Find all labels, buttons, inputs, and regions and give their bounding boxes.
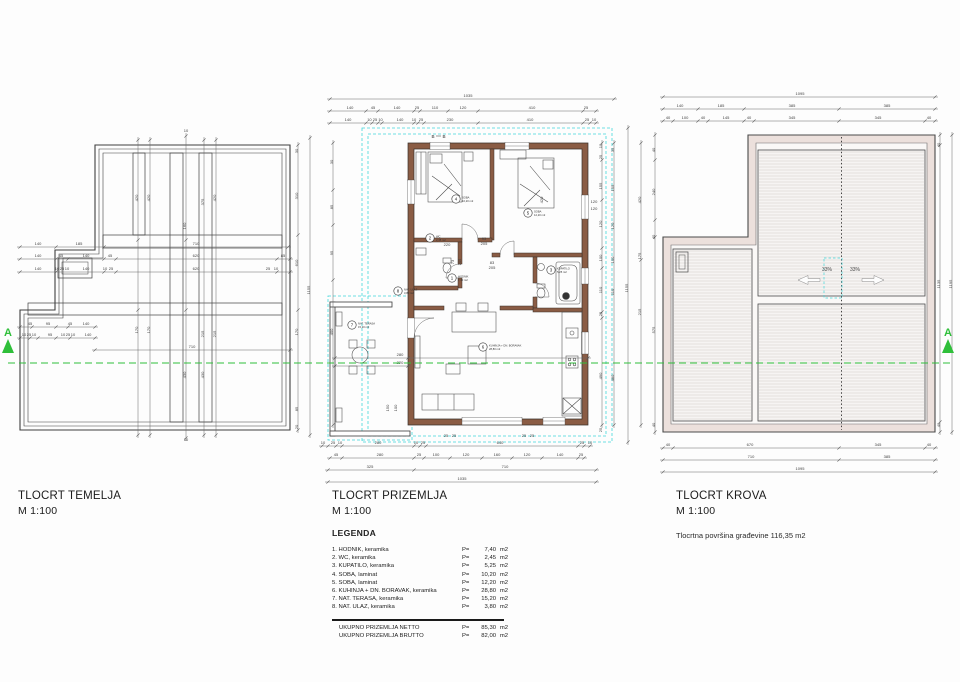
dim-label: 10 25 10 (367, 117, 383, 122)
dim-label: 25 (598, 154, 603, 159)
dim-label: 710 (189, 344, 196, 349)
legend-item-unit: m2 (496, 555, 508, 561)
plan-title: TLOCRT KROVA (676, 489, 767, 504)
dim-label: 155 (610, 184, 615, 191)
legend-item-p: P= (462, 547, 476, 553)
dim-label: 420 (146, 194, 151, 201)
foundation-dim-labels: 1401857101404514045620851401025101401025… (22, 128, 311, 442)
legend-items: 1. HODNIK, keramikaP=7,40m22. WC, kerami… (332, 547, 508, 613)
legend-item-lab: 8. NAT. ULAZ, keramika (332, 604, 462, 610)
dim-label: 100 (682, 115, 689, 120)
dim-label: 1135 (936, 279, 941, 288)
legend-item-val: 15,20 (476, 596, 496, 602)
dim-label: 10 (65, 266, 70, 271)
dim-label: 385 (789, 103, 796, 108)
dim-label: 385 (884, 103, 891, 108)
dim-label: 25 (598, 427, 603, 432)
dim-label: 45 (59, 253, 64, 258)
dim-label: 100 (393, 404, 398, 411)
legend-item-lab: 3. KUPATILO, keramika (332, 563, 462, 569)
section-marker-a-right: A (944, 327, 952, 339)
dim-label: 185 (76, 241, 83, 246)
dim-label: 120 (463, 452, 470, 457)
dim-label: 345 (875, 115, 882, 120)
dim-label: 1195 (948, 279, 953, 288)
dim-label: 160 (182, 222, 187, 229)
dim-label: 575 (651, 326, 656, 333)
room-name: KUPATILO (557, 267, 570, 271)
legend-item: 4. SOBA, laminatP=10,20m2 (332, 572, 508, 580)
dim-label: 145 (723, 115, 730, 120)
room-area: 15,20 m2 (358, 325, 370, 329)
dim-label: 205 (457, 258, 462, 265)
dim-label: 25 (585, 117, 590, 122)
dim-label: 280 (375, 440, 382, 445)
title-block-temelja: TLOCRT TEMELJA M 1:100 (18, 489, 121, 519)
dim-label: 25 (266, 266, 271, 271)
toilet (537, 288, 545, 298)
legend-item-val: 3,80 (476, 604, 496, 610)
openings (407, 142, 589, 425)
legend-item-lab: UKUPNO PRIZEMLJA NETTO (332, 625, 462, 631)
dim-label: 120 (591, 206, 598, 211)
legend-item: 2. WC, keramikaP=2,45m2 (332, 555, 508, 563)
dim-label: 85 (329, 204, 334, 209)
dim-label: 160 (494, 452, 501, 457)
room-name: KUHINJA + DN. BORAVAK (489, 344, 522, 348)
dim-label: 175 (637, 252, 642, 259)
plan-scale: M 1:100 (676, 504, 767, 519)
dim-label: 410 (529, 105, 536, 110)
legend-item-p: P= (462, 633, 476, 639)
dim-label: 100 (610, 256, 615, 263)
section-marker-a-left: A (4, 327, 12, 339)
legend-item-val: 82,00 (476, 633, 496, 639)
dim-label: 85 (294, 406, 299, 411)
roof-panels (673, 150, 925, 421)
dim-label: 375 (200, 198, 205, 205)
room-area: 10,20 m2 (462, 199, 474, 203)
room-area: 2,45 m2 (436, 238, 446, 242)
legend-item-val: 5,25 (476, 563, 496, 569)
sink (416, 248, 426, 255)
dim-label: 345 (789, 115, 796, 120)
legend-item: 7. NAT. TERASA, keramikaP=15,20m2 (332, 596, 508, 604)
footing-strip (170, 153, 183, 422)
dim-label: 155 (598, 182, 603, 189)
dim-label: 1035 (458, 476, 468, 481)
dim-label: 95 (48, 332, 53, 337)
dim-label: 140 (35, 241, 42, 246)
legend: LEGENDA 1. HODNIK, keramikaP=7,40m22. WC… (332, 528, 508, 641)
legend-item: UKUPNO PRIZEMLJA NETTOP=85,30m2 (332, 625, 508, 633)
dim-label: 25 (452, 433, 457, 438)
sofa (422, 394, 474, 410)
legend-separator (332, 619, 504, 621)
section-marker-b: BB (431, 134, 445, 139)
room-area: 7,40 m2 (458, 278, 468, 282)
dim-label: 10 (71, 332, 76, 337)
dim-label: 40 (651, 234, 656, 239)
sink (538, 264, 545, 271)
dim-label: 1155 (306, 285, 311, 294)
dim-label: 420 (637, 196, 642, 203)
dim-label: 25 (522, 433, 527, 438)
room-name: WC (436, 235, 441, 239)
legend-item-unit: m2 (496, 596, 508, 602)
dim-label: 640 (497, 440, 504, 445)
stove (563, 293, 570, 300)
dim-label: 215 (212, 330, 217, 337)
dim-label: 40 (936, 142, 941, 147)
room-name: NAT. ULAZ (404, 288, 418, 292)
dim-label: 30 (294, 148, 299, 153)
dim-label: 35 (610, 147, 615, 152)
dim-label: 140 (83, 253, 90, 258)
slope-label-right: 33% (850, 267, 861, 273)
legend-item: 1. HODNIK, keramikaP=7,40m2 (332, 547, 508, 555)
legend-item-p: P= (462, 555, 476, 561)
legend-item-lab: 5. SOBA, laminat (332, 580, 462, 586)
dim-label: 25 (444, 433, 449, 438)
dim-label: 150 (385, 404, 390, 411)
dim-label: 10 (184, 128, 189, 133)
dim-label: 25 (109, 266, 114, 271)
dim-label: 710 (502, 464, 509, 469)
dim-label: 25 (598, 311, 603, 316)
dim-label: 110 (432, 105, 439, 110)
dim-label: 25 (421, 440, 426, 445)
dim-label: 110 (598, 286, 603, 293)
legend-item-val: 10,20 (476, 572, 496, 578)
legend-item-val: 85,30 (476, 625, 496, 631)
dim-label: 325 (367, 464, 374, 469)
dim-label: 140 (397, 117, 404, 122)
legend-item: UKUPNO PRIZEMLJA BRUTTOP=82,00m2 (332, 633, 508, 641)
dim-label: 10 (588, 440, 593, 445)
room-area: 5,25 m2 (557, 270, 567, 274)
dim-label: 240 (651, 188, 656, 195)
legend-item-lab: 7. NAT. TERASA, keramika (332, 596, 462, 602)
dim-label: 710 (193, 241, 200, 246)
legend-item: 5. SOBA, laminatP=12,20m2 (332, 580, 508, 588)
room-area: 28,80 m2 (489, 347, 501, 351)
dim-label: 140 (677, 103, 684, 108)
dim-label: 25 (530, 433, 535, 438)
dim-label: 400 (329, 328, 334, 335)
legend-item-p: P= (462, 596, 476, 602)
dim-label: 45 (68, 321, 73, 326)
kitchen-counter (562, 312, 582, 416)
dim-label: 25 (579, 452, 584, 457)
legend-item-val: 28,80 (476, 588, 496, 594)
legend-item-unit: m2 (496, 588, 508, 594)
dim-label: 1155 (624, 283, 629, 292)
dim-label: 10 (414, 440, 419, 445)
legend-item-unit: m2 (496, 563, 508, 569)
dim-label: 25 (331, 440, 336, 445)
dim-label: 170 (294, 328, 299, 335)
roof-plan-drawing: 33% 33% (663, 135, 935, 432)
dim-label: 230 (447, 117, 454, 122)
dim-label: 1095 (796, 91, 806, 96)
slope-label-left: 33% (822, 267, 833, 273)
dim-label: 25 (580, 440, 585, 445)
dim-label: 40 (927, 115, 932, 120)
dim-label: 345 (875, 442, 882, 447)
dim-label: 140 (85, 332, 92, 337)
legend-item-lab: 1. HODNIK, keramika (332, 547, 462, 553)
dim-label: 45 (28, 321, 33, 326)
section-marker-b: B (442, 134, 445, 139)
dim-label: 620 (193, 266, 200, 271)
dim-label: 480 (610, 374, 615, 381)
dim-label: 170 (134, 326, 139, 333)
dim-label: 140 (557, 452, 564, 457)
dim-label: 120 (524, 452, 531, 457)
legend-item-lab: 4. SOBA, laminat (332, 572, 462, 578)
dim-label: 110 (610, 288, 615, 295)
dim-label: 95 (329, 250, 334, 255)
dim-label: 20 (294, 424, 299, 429)
interior-walls (414, 149, 582, 312)
room-name: SOBA (534, 210, 542, 214)
plan-scale: M 1:100 (18, 504, 121, 519)
dim-label: 45 (371, 105, 376, 110)
room-name: SOBA (462, 196, 470, 200)
dim-label: 25 (415, 105, 420, 110)
dim-label: 205 (481, 241, 488, 246)
dim-label: 620 (193, 253, 200, 258)
dim-label: 10 (32, 332, 37, 337)
dim-label: 100 (598, 254, 603, 261)
dim-label: 95 (46, 321, 51, 326)
dim-label: 220 (444, 242, 451, 247)
legend-item-val: 12,20 (476, 580, 496, 586)
title-block-krova: TLOCRT KROVA M 1:100 (676, 489, 767, 519)
legend-item-unit: m2 (496, 580, 508, 586)
dim-label: 10 (274, 266, 279, 271)
dim-label: 140 (345, 117, 352, 122)
dim-label: 170 (146, 326, 151, 333)
dim-label: 385 (884, 454, 891, 459)
plan-title: TLOCRT TEMELJA (18, 489, 121, 504)
dim-label: 140 (347, 105, 354, 110)
dim-label: 40 (666, 115, 671, 120)
dim-label: 1095 (796, 466, 806, 471)
dim-label: 10 (103, 266, 108, 271)
title-block-prizemlja: TLOCRT PRIZEMLJA M 1:100 (332, 489, 447, 519)
dim-label: 215 (200, 330, 205, 337)
plan-title: TLOCRT PRIZEMLJA (332, 489, 447, 504)
dim-label: 40 (651, 147, 656, 152)
legend-item: 8. NAT. ULAZ, keramikaP=3,80m2 (332, 604, 508, 612)
dim-label: 73 (450, 259, 455, 264)
dim-label: 40 (651, 422, 656, 427)
dim-label: 120 (591, 199, 598, 204)
dim-label: 140 (35, 266, 42, 271)
dim-label: 430 (200, 371, 205, 378)
dim-label: 120 (598, 220, 603, 227)
legend-item-lab: UKUPNO PRIZEMLJA BRUTTO (332, 633, 462, 639)
dim-label: 420 (134, 194, 139, 201)
dim-label: 1035 (464, 93, 474, 98)
legend-item-p: P= (462, 604, 476, 610)
dim-label: 10 (412, 117, 417, 122)
dim-label: 420 (539, 196, 544, 203)
plan-scale: M 1:100 (332, 504, 447, 519)
dim-label: 10 (598, 143, 603, 148)
dim-label: 310 (294, 192, 299, 199)
dim-label: 215 (637, 308, 642, 315)
dim-label: 85 (281, 253, 286, 258)
dim-label: 40 (747, 115, 752, 120)
room-name: HODNIK (458, 275, 469, 279)
legend-item-p: P= (462, 563, 476, 569)
legend-item-unit: m2 (496, 604, 508, 610)
section-marker-b: B (431, 134, 434, 139)
dim-label: 10 (184, 437, 189, 442)
foundation-dim-lines (17, 133, 312, 441)
legend-item: 6. KUHINJA + DN. BORAVAK, keramikaP=28,8… (332, 588, 508, 596)
dim-label: 120 (460, 105, 467, 110)
legend-totals: UKUPNO PRIZEMLJA NETTOP=85,30m2UKUPNO PR… (332, 625, 508, 641)
exterior-walls (408, 143, 588, 425)
architectural-sheet: 1401857101404514045620851401025101401025… (0, 0, 960, 682)
dim-label: 45 (334, 452, 339, 457)
legend-item-lab: 6. KUHINJA + DN. BORAVAK, keramika (332, 588, 462, 594)
room-area: 3,80 m2 (404, 291, 414, 295)
dim-label: 40 (927, 442, 932, 447)
insulation-envelope (328, 128, 612, 442)
legend-item-lab: 2. WC, keramika (332, 555, 462, 561)
dim-label: 140 (35, 253, 42, 258)
dim-label: 40 (936, 422, 941, 427)
dim-label: 40 (701, 115, 706, 120)
legend-item: 3. KUPATILO, keramikaP=5,25m2 (332, 563, 508, 571)
dim-label: 280 (377, 452, 384, 457)
dining-table (452, 312, 496, 332)
dim-label: 140 (394, 105, 401, 110)
terrace-table (352, 347, 368, 363)
dim-label: 100 (433, 452, 440, 457)
section-arrow-left-icon (2, 339, 14, 353)
dim-label: 30 (329, 159, 334, 164)
legend-item-unit: m2 (496, 572, 508, 578)
legend-item-p: P= (462, 625, 476, 631)
dim-label: 205 (489, 265, 496, 270)
dim-label: 10 (592, 117, 597, 122)
coffee-table (446, 364, 460, 374)
dim-label: 490 (598, 372, 603, 379)
dim-label: 185 (718, 103, 725, 108)
bed (518, 158, 554, 208)
dim-label: 25 (417, 452, 422, 457)
dim-label: 410 (527, 117, 534, 122)
dim-label: 120 (610, 222, 615, 229)
roof-area-note: Tlocrtna površina građevine 116,35 m2 (676, 531, 806, 540)
dim-label: 420 (212, 194, 217, 201)
legend-item-unit: m2 (496, 625, 508, 631)
legend-item-p: P= (462, 580, 476, 586)
legend-item-val: 7,40 (476, 547, 496, 553)
dim-label: 25 (419, 117, 424, 122)
dim-label: 45 (108, 253, 113, 258)
legend-item-unit: m2 (496, 547, 508, 553)
dim-label: 280 (397, 352, 404, 357)
room-area: 12,20 m2 (534, 213, 546, 217)
legend-item-p: P= (462, 588, 476, 594)
dim-label: 10 (321, 440, 326, 445)
dim-label: 430 (182, 371, 187, 378)
foundation-plan-drawing (20, 145, 290, 430)
dim-label: 610 (294, 259, 299, 266)
legend-heading: LEGENDA (332, 528, 508, 538)
dim-label: 670 (747, 442, 754, 447)
dim-label: 140 (83, 321, 90, 326)
floor-dim-lines (319, 97, 643, 483)
legend-item-val: 2,45 (476, 555, 496, 561)
floor-plan-drawing (328, 128, 612, 442)
wardrobe (500, 150, 526, 159)
legend-item-p: P= (462, 572, 476, 578)
dim-label: 140 (83, 266, 90, 271)
dim-label: 40 (666, 442, 671, 447)
room-name: NAT. TERASA (358, 322, 375, 326)
legend-item-unit: m2 (496, 633, 508, 639)
dim-label: 710 (748, 454, 755, 459)
dim-label: 10 (338, 440, 343, 445)
dim-label: 25 (584, 105, 589, 110)
